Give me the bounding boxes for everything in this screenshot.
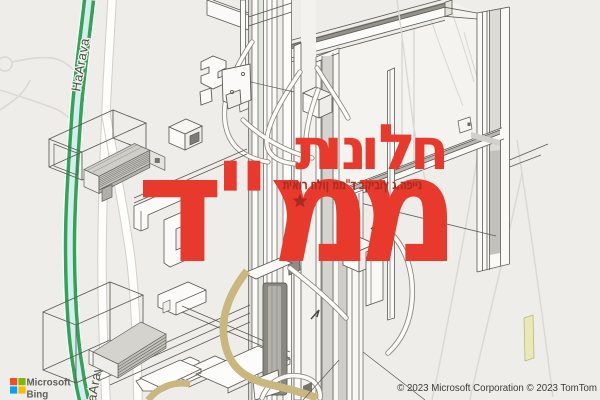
svg-text:Bing: Bing (27, 390, 49, 400)
svg-text:Microsoft: Microsoft (27, 378, 72, 389)
svg-text:© 2023 Microsoft Corporation ©: © 2023 Microsoft Corporation © 2023 TomT… (397, 383, 597, 394)
